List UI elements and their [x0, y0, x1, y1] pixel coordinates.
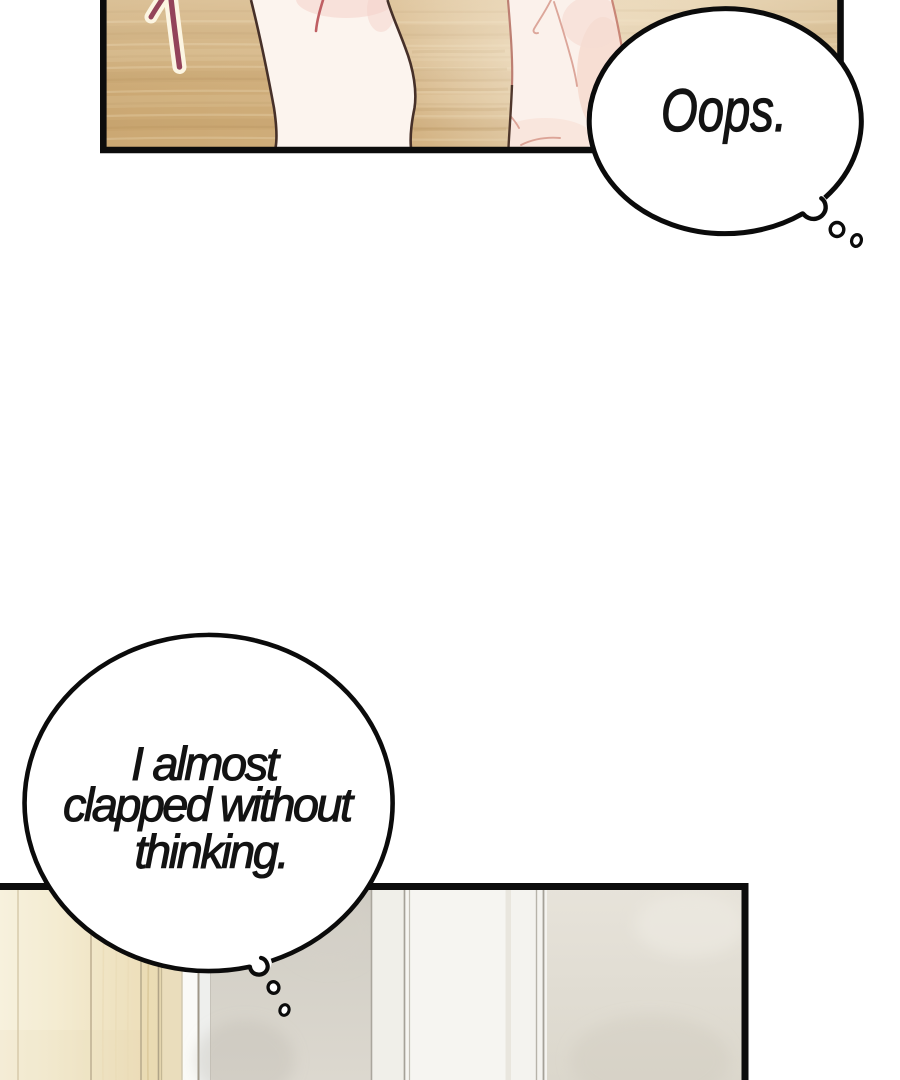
- svg-text:thinking.: thinking.: [135, 825, 290, 878]
- svg-text:Oops.: Oops.: [661, 77, 787, 144]
- svg-text:clapped without: clapped without: [63, 778, 355, 831]
